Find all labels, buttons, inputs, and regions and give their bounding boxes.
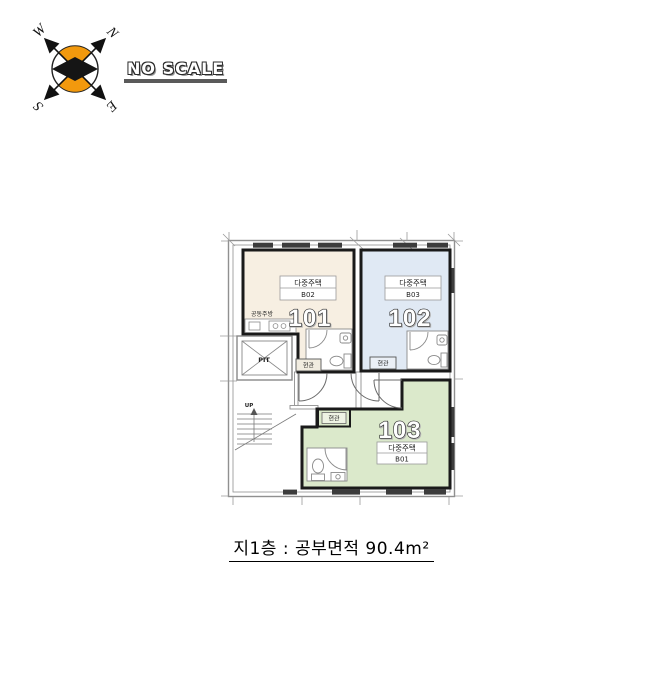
unit-102-label-box: 다중주택 B03 — [385, 276, 441, 300]
unit-103-bathroom — [307, 448, 347, 481]
toilet-icon — [313, 459, 324, 473]
elevator-pit-label: PIT — [258, 356, 270, 364]
floor-plan-page: N E S W NO SCALE — [0, 0, 663, 700]
unit-102-entrance: 현관 — [370, 357, 396, 369]
toilet-icon — [330, 356, 343, 366]
elevator-pit: PIT — [237, 336, 292, 380]
unit-103-entrance-label: 현관 — [328, 415, 340, 423]
unit-103-label-box: 다중주택 B01 — [377, 442, 427, 464]
unit-101-number: 101 — [288, 305, 331, 332]
unit-102-entrance-label: 현관 — [377, 360, 389, 368]
unit-103-type: 다중주택 — [388, 443, 416, 453]
floor-plan-drawing: 공동주방 다중주택 B02 101 현관 — [0, 0, 663, 700]
unit-103-code: B01 — [395, 456, 409, 464]
unit-102-bathroom — [407, 331, 448, 369]
sink-icon — [437, 335, 447, 345]
unit-101-type: 다중주택 — [294, 278, 322, 288]
caption: 지1층 : 공부면적 90.4m² — [0, 534, 663, 562]
unit-102: 다중주택 B03 102 현관 — [361, 250, 450, 371]
unit-101-entrance: 현관 — [296, 359, 321, 371]
toilet-icon — [428, 355, 440, 364]
unit-103-number: 103 — [378, 417, 421, 444]
unit-102-type: 다중주택 — [399, 278, 427, 288]
unit-101-label-box: 다중주택 B02 — [280, 276, 336, 300]
stairs-up-label: UP — [245, 403, 254, 409]
unit-101-code: B02 — [301, 291, 315, 299]
toilet-tank — [344, 354, 351, 368]
caption-text: 지1층 : 공부면적 90.4m² — [229, 534, 433, 562]
unit-102-number: 102 — [388, 305, 431, 332]
sink-icon — [340, 333, 351, 343]
toilet-tank — [312, 474, 325, 481]
toilet-tank — [441, 353, 447, 367]
unit-101-entrance-label: 현관 — [303, 362, 315, 370]
sink-icon — [331, 473, 345, 482]
unit-102-code: B03 — [406, 291, 420, 299]
kitchen-label: 공동주방 — [251, 310, 274, 318]
